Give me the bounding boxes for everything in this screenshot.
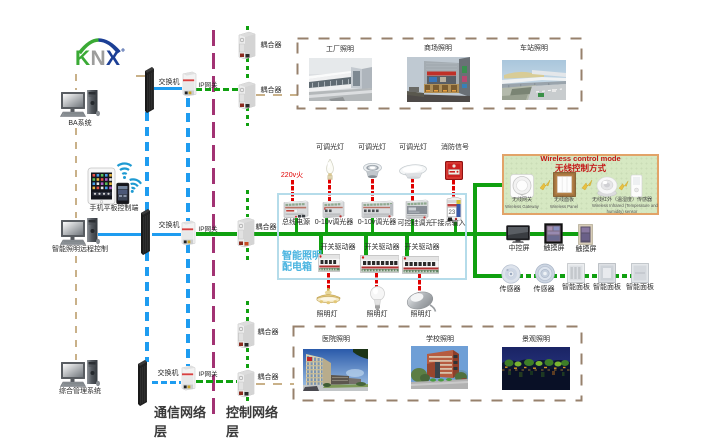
svg-text:23: 23: [449, 210, 456, 216]
svg-text:K: K: [75, 47, 90, 67]
svg-text:X: X: [106, 47, 120, 67]
svg-text:N: N: [91, 47, 106, 67]
